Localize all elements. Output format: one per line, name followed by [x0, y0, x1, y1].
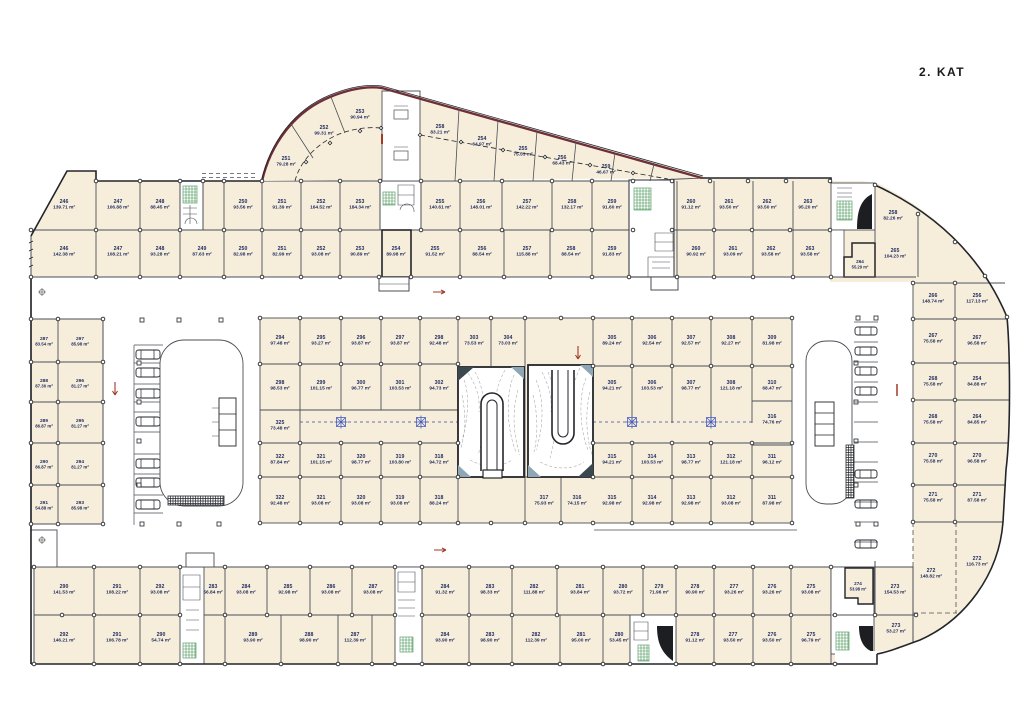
- svg-text:283: 283: [486, 632, 495, 638]
- svg-text:264: 264: [856, 259, 864, 264]
- svg-text:54.74 m²: 54.74 m²: [151, 638, 171, 644]
- svg-text:68.43 m²: 68.43 m²: [552, 161, 572, 167]
- svg-text:99.31 m²: 99.31 m²: [314, 131, 334, 137]
- svg-text:74.76 m²: 74.76 m²: [762, 420, 782, 426]
- svg-text:84.85 m²: 84.85 m²: [967, 420, 987, 426]
- svg-text:90.94 m²: 90.94 m²: [350, 115, 370, 121]
- svg-text:83.54 m²: 83.54 m²: [35, 342, 53, 347]
- svg-text:268: 268: [929, 414, 938, 420]
- svg-text:104.23 m²: 104.23 m²: [884, 254, 906, 260]
- svg-text:92.27 m²: 92.27 m²: [721, 341, 741, 347]
- svg-text:64.97 m²: 64.97 m²: [472, 142, 492, 148]
- svg-text:132.17 m²: 132.17 m²: [561, 205, 583, 211]
- svg-text:93.28 m²: 93.28 m²: [150, 252, 170, 258]
- svg-text:260: 260: [692, 246, 701, 252]
- svg-text:301: 301: [396, 380, 405, 386]
- svg-text:291: 291: [113, 584, 122, 590]
- svg-text:93.58 m²: 93.58 m²: [761, 252, 781, 258]
- svg-text:247: 247: [114, 246, 123, 252]
- svg-text:91.83 m²: 91.83 m²: [602, 252, 622, 258]
- svg-text:250: 250: [239, 199, 248, 205]
- svg-text:82.98 m²: 82.98 m²: [233, 252, 253, 258]
- svg-text:304: 304: [504, 335, 513, 341]
- svg-text:316: 316: [573, 495, 582, 501]
- svg-text:68.47 m²: 68.47 m²: [762, 386, 782, 392]
- svg-text:298: 298: [435, 335, 444, 341]
- svg-text:53.27 m²: 53.27 m²: [886, 629, 906, 635]
- svg-text:106.88 m²: 106.88 m²: [107, 205, 129, 211]
- svg-text:97.48 m²: 97.48 m²: [270, 341, 290, 347]
- svg-text:314: 314: [648, 495, 657, 501]
- svg-text:93.09 m²: 93.09 m²: [723, 252, 743, 258]
- svg-text:93.27 m²: 93.27 m²: [311, 341, 331, 347]
- svg-text:317: 317: [540, 495, 549, 501]
- svg-text:316: 316: [768, 414, 777, 420]
- svg-text:85.98 m²: 85.98 m²: [71, 342, 89, 347]
- svg-text:92.98 m²: 92.98 m²: [642, 501, 662, 507]
- svg-text:263: 263: [804, 199, 813, 205]
- svg-text:292: 292: [156, 584, 165, 590]
- svg-text:258: 258: [436, 124, 445, 130]
- svg-text:285: 285: [284, 584, 293, 590]
- svg-text:255: 255: [431, 246, 440, 252]
- svg-text:305: 305: [608, 335, 617, 341]
- svg-text:273: 273: [892, 623, 901, 629]
- svg-text:303: 303: [470, 335, 479, 341]
- svg-text:93.08 m²: 93.08 m²: [311, 501, 331, 507]
- svg-text:320: 320: [357, 454, 366, 460]
- svg-text:87.84 m²: 87.84 m²: [270, 460, 290, 466]
- svg-text:283: 283: [486, 584, 495, 590]
- svg-text:140.61 m²: 140.61 m²: [429, 205, 451, 211]
- svg-text:87.30 m²: 87.30 m²: [35, 384, 53, 389]
- svg-text:55.29 m²: 55.29 m²: [852, 265, 869, 270]
- svg-text:272: 272: [927, 568, 936, 574]
- svg-text:251: 251: [278, 199, 287, 205]
- svg-text:96.58 m²: 96.58 m²: [967, 459, 987, 465]
- svg-text:93.56 m²: 93.56 m²: [233, 205, 253, 211]
- svg-text:260: 260: [687, 199, 696, 205]
- svg-text:259: 259: [608, 199, 617, 205]
- svg-text:252: 252: [317, 199, 326, 205]
- svg-text:251: 251: [282, 156, 291, 162]
- svg-text:251: 251: [278, 246, 287, 252]
- svg-text:93.50 m²: 93.50 m²: [757, 205, 777, 211]
- svg-text:86.87 m²: 86.87 m²: [35, 424, 53, 429]
- svg-text:111.88 m²: 111.88 m²: [523, 590, 545, 596]
- svg-text:91.52 m²: 91.52 m²: [425, 252, 445, 258]
- svg-text:256: 256: [973, 293, 982, 299]
- svg-text:267: 267: [973, 335, 982, 341]
- svg-text:261: 261: [725, 199, 734, 205]
- svg-text:75.58 m²: 75.58 m²: [923, 420, 943, 426]
- svg-text:98.77 m²: 98.77 m²: [681, 386, 701, 392]
- svg-text:92.98 m²: 92.98 m²: [602, 501, 622, 507]
- svg-text:253: 253: [356, 246, 365, 252]
- svg-text:307: 307: [687, 335, 696, 341]
- svg-text:261: 261: [729, 246, 738, 252]
- svg-text:96.77 m²: 96.77 m²: [351, 386, 371, 392]
- svg-text:81.27 m²: 81.27 m²: [71, 384, 89, 389]
- svg-text:256: 256: [477, 199, 486, 205]
- svg-text:121.18 m²: 121.18 m²: [720, 386, 742, 392]
- svg-text:92.57 m²: 92.57 m²: [681, 341, 701, 347]
- svg-text:322: 322: [276, 454, 285, 460]
- svg-text:310: 310: [768, 380, 777, 386]
- svg-text:92.48 m²: 92.48 m²: [270, 501, 290, 507]
- svg-text:93.08 m²: 93.08 m²: [390, 501, 410, 507]
- svg-text:93.50 m²: 93.50 m²: [723, 638, 743, 644]
- svg-text:276: 276: [768, 632, 777, 638]
- svg-text:321: 321: [317, 454, 326, 460]
- svg-text:247: 247: [114, 199, 123, 205]
- svg-text:252: 252: [320, 125, 329, 131]
- svg-text:101.15 m²: 101.15 m²: [310, 460, 332, 466]
- svg-text:314: 314: [648, 454, 657, 460]
- svg-text:302: 302: [435, 380, 444, 386]
- svg-text:262: 262: [767, 246, 776, 252]
- svg-text:141.53 m²: 141.53 m²: [53, 590, 75, 596]
- svg-text:98.90 m²: 98.90 m²: [299, 638, 319, 644]
- svg-text:315: 315: [608, 454, 617, 460]
- svg-text:93.90 m²: 93.90 m²: [243, 638, 263, 644]
- svg-text:290: 290: [60, 584, 69, 590]
- svg-text:313: 313: [687, 495, 696, 501]
- svg-text:121.18 m²: 121.18 m²: [720, 460, 742, 466]
- svg-text:281: 281: [576, 584, 585, 590]
- svg-text:258: 258: [889, 210, 898, 216]
- svg-text:325: 325: [276, 420, 285, 426]
- svg-text:90.89 m²: 90.89 m²: [350, 252, 370, 258]
- svg-text:164.52 m²: 164.52 m²: [310, 205, 332, 211]
- svg-text:146.21 m²: 146.21 m²: [53, 638, 75, 644]
- svg-text:258: 258: [567, 246, 576, 252]
- svg-text:73.03 m²: 73.03 m²: [498, 341, 518, 347]
- svg-text:98.53 m²: 98.53 m²: [270, 386, 290, 392]
- svg-text:266: 266: [929, 293, 938, 299]
- svg-text:103.80 m²: 103.80 m²: [389, 460, 411, 466]
- svg-text:103.53 m²: 103.53 m²: [389, 386, 411, 392]
- svg-text:308: 308: [727, 380, 736, 386]
- svg-text:256: 256: [558, 155, 567, 161]
- svg-text:87.58 m²: 87.58 m²: [967, 498, 987, 504]
- svg-text:277: 277: [730, 584, 739, 590]
- svg-text:246: 246: [60, 246, 69, 252]
- svg-text:254: 254: [478, 136, 487, 142]
- svg-text:297: 297: [396, 335, 405, 341]
- svg-text:117.13 m²: 117.13 m²: [966, 299, 988, 305]
- svg-text:276: 276: [768, 584, 777, 590]
- svg-text:320: 320: [357, 495, 366, 501]
- svg-text:257: 257: [523, 246, 532, 252]
- svg-text:2. KAT: 2. KAT: [919, 65, 965, 79]
- svg-text:83.21 m²: 83.21 m²: [430, 130, 450, 136]
- svg-text:115.88 m²: 115.88 m²: [516, 252, 538, 258]
- svg-text:90.90 m²: 90.90 m²: [685, 590, 705, 596]
- svg-text:280: 280: [619, 584, 628, 590]
- svg-text:54.88 m²: 54.88 m²: [35, 506, 53, 511]
- svg-text:277: 277: [729, 632, 738, 638]
- svg-text:89.98 m²: 89.98 m²: [386, 252, 406, 258]
- svg-text:290: 290: [157, 632, 166, 638]
- svg-text:98.90 m²: 98.90 m²: [480, 638, 500, 644]
- svg-text:84.88 m²: 84.88 m²: [967, 382, 987, 388]
- svg-text:86.87 m²: 86.87 m²: [35, 465, 53, 470]
- svg-text:308: 308: [727, 335, 736, 341]
- svg-text:256: 256: [478, 246, 487, 252]
- svg-text:98.77 m²: 98.77 m²: [351, 460, 371, 466]
- svg-text:95.00 m²: 95.00 m²: [571, 638, 591, 644]
- svg-text:142.22 m²: 142.22 m²: [516, 205, 538, 211]
- svg-text:305: 305: [608, 380, 617, 386]
- svg-text:252: 252: [317, 246, 326, 252]
- svg-text:96.58 m²: 96.58 m²: [967, 341, 987, 347]
- svg-text:311: 311: [768, 495, 776, 501]
- svg-text:93.87 m²: 93.87 m²: [390, 341, 410, 347]
- svg-text:279: 279: [655, 584, 664, 590]
- svg-text:87.98 m²: 87.98 m²: [762, 501, 782, 507]
- svg-text:248: 248: [156, 199, 165, 205]
- svg-text:259: 259: [608, 246, 617, 252]
- svg-text:312: 312: [727, 495, 736, 501]
- svg-text:112.39 m²: 112.39 m²: [525, 638, 547, 644]
- svg-text:112.39 m²: 112.39 m²: [344, 638, 366, 644]
- svg-text:93.08 m²: 93.08 m²: [311, 252, 331, 258]
- svg-text:94.21 m²: 94.21 m²: [602, 386, 622, 392]
- svg-text:287: 287: [369, 584, 378, 590]
- svg-text:75.58 m²: 75.58 m²: [923, 382, 943, 388]
- svg-text:46.67 m²: 46.67 m²: [596, 170, 616, 176]
- svg-text:284: 284: [441, 584, 450, 590]
- svg-text:258: 258: [568, 199, 577, 205]
- svg-text:91.12 m²: 91.12 m²: [685, 638, 705, 644]
- svg-text:262: 262: [763, 199, 772, 205]
- svg-text:94.72 m²: 94.72 m²: [429, 460, 449, 466]
- svg-text:271: 271: [929, 492, 938, 498]
- svg-text:93.08 m²: 93.08 m²: [721, 501, 741, 507]
- svg-text:306: 306: [648, 335, 657, 341]
- svg-text:88.54 m²: 88.54 m²: [561, 252, 581, 258]
- svg-text:270: 270: [929, 453, 938, 459]
- svg-text:148.74 m²: 148.74 m²: [922, 299, 944, 305]
- svg-text:103.53 m²: 103.53 m²: [641, 386, 663, 392]
- svg-text:249: 249: [198, 246, 207, 252]
- svg-text:253: 253: [356, 199, 365, 205]
- svg-text:292: 292: [60, 632, 69, 638]
- svg-text:87.63 m²: 87.63 m²: [192, 252, 212, 258]
- svg-text:93.26 m²: 93.26 m²: [724, 590, 744, 596]
- svg-text:96.79 m²: 96.79 m²: [801, 638, 821, 644]
- svg-text:98.33 m²: 98.33 m²: [480, 590, 500, 596]
- svg-text:268: 268: [929, 376, 938, 382]
- svg-text:267: 267: [929, 333, 938, 339]
- svg-text:93.50 m²: 93.50 m²: [719, 205, 739, 211]
- svg-text:92.48 m²: 92.48 m²: [429, 341, 449, 347]
- svg-text:307: 307: [687, 380, 696, 386]
- svg-text:148.01 m²: 148.01 m²: [470, 205, 492, 211]
- svg-text:300: 300: [357, 380, 366, 386]
- svg-text:71.96 m²: 71.96 m²: [649, 590, 669, 596]
- svg-text:287: 287: [351, 632, 360, 638]
- svg-text:93.90 m²: 93.90 m²: [435, 638, 455, 644]
- svg-text:90.92 m²: 90.92 m²: [686, 252, 706, 258]
- svg-text:286: 286: [327, 584, 336, 590]
- svg-text:75.93 m²: 75.93 m²: [534, 501, 554, 507]
- svg-text:92.98 m²: 92.98 m²: [681, 501, 701, 507]
- svg-text:278: 278: [691, 584, 700, 590]
- svg-text:82.26 m²: 82.26 m²: [883, 216, 903, 222]
- svg-text:278: 278: [691, 632, 700, 638]
- svg-text:93.26 m²: 93.26 m²: [762, 590, 782, 596]
- svg-text:94.21 m²: 94.21 m²: [602, 460, 622, 466]
- svg-text:93.08 m²: 93.08 m²: [236, 590, 256, 596]
- svg-text:319: 319: [396, 495, 405, 501]
- svg-text:250: 250: [239, 246, 248, 252]
- svg-text:92.98 m²: 92.98 m²: [278, 590, 298, 596]
- svg-text:272: 272: [973, 556, 982, 562]
- svg-text:73.53 m²: 73.53 m²: [464, 341, 484, 347]
- svg-text:93.08 m²: 93.08 m²: [801, 590, 821, 596]
- svg-text:53.98 m²: 53.98 m²: [850, 587, 867, 592]
- svg-text:95.20 m²: 95.20 m²: [798, 205, 818, 211]
- svg-text:108.22 m²: 108.22 m²: [106, 590, 128, 596]
- svg-text:116.73 m²: 116.73 m²: [966, 562, 988, 568]
- svg-text:91.32 m²: 91.32 m²: [435, 590, 455, 596]
- svg-text:284: 284: [441, 632, 450, 638]
- svg-text:93.72 m²: 93.72 m²: [613, 590, 633, 596]
- svg-text:321: 321: [317, 495, 326, 501]
- svg-text:93.08 m²: 93.08 m²: [351, 501, 371, 507]
- svg-text:93.50 m²: 93.50 m²: [762, 638, 782, 644]
- svg-text:263: 263: [806, 246, 815, 252]
- svg-text:108.21 m²: 108.21 m²: [107, 252, 129, 258]
- svg-text:75.53 m²: 75.53 m²: [513, 152, 533, 158]
- svg-text:103.53 m²: 103.53 m²: [641, 460, 663, 466]
- svg-text:255: 255: [519, 146, 528, 152]
- svg-text:318: 318: [435, 454, 444, 460]
- svg-text:273: 273: [891, 584, 900, 590]
- svg-text:93.08 m²: 93.08 m²: [150, 590, 170, 596]
- svg-text:275: 275: [807, 632, 816, 638]
- svg-text:98.77 m²: 98.77 m²: [681, 460, 701, 466]
- svg-text:298: 298: [276, 380, 285, 386]
- svg-text:53.45 m²: 53.45 m²: [609, 638, 629, 644]
- svg-text:270: 270: [973, 453, 982, 459]
- svg-text:81.98 m²: 81.98 m²: [762, 341, 782, 347]
- svg-text:89.24 m²: 89.24 m²: [602, 341, 622, 347]
- svg-text:75.58 m²: 75.58 m²: [923, 498, 943, 504]
- svg-text:254: 254: [392, 246, 401, 252]
- svg-text:282: 282: [532, 632, 541, 638]
- svg-text:93.08 m²: 93.08 m²: [321, 590, 341, 596]
- svg-text:101.15 m²: 101.15 m²: [310, 386, 332, 392]
- svg-text:299: 299: [317, 380, 326, 386]
- svg-text:142.38 m²: 142.38 m²: [53, 252, 75, 258]
- svg-text:184.34 m²: 184.34 m²: [349, 205, 371, 211]
- svg-text:296: 296: [357, 335, 366, 341]
- svg-text:283: 283: [209, 584, 218, 590]
- svg-text:93.87 m²: 93.87 m²: [351, 341, 371, 347]
- svg-text:254: 254: [973, 376, 982, 382]
- svg-text:288: 288: [305, 632, 314, 638]
- svg-text:255: 255: [436, 199, 445, 205]
- svg-text:281: 281: [577, 632, 586, 638]
- svg-text:82.99 m²: 82.99 m²: [272, 252, 292, 258]
- svg-text:93.84 m²: 93.84 m²: [570, 590, 590, 596]
- svg-text:75.58 m²: 75.58 m²: [923, 459, 943, 465]
- svg-text:259: 259: [602, 164, 611, 170]
- svg-text:73.48 m²: 73.48 m²: [270, 426, 290, 432]
- svg-text:284: 284: [242, 584, 251, 590]
- svg-text:88.24 m²: 88.24 m²: [429, 501, 449, 507]
- svg-text:257: 257: [523, 199, 532, 205]
- svg-text:96.12 m²: 96.12 m²: [762, 460, 782, 466]
- svg-text:81.27 m²: 81.27 m²: [71, 465, 89, 470]
- svg-text:74.15 m²: 74.15 m²: [567, 501, 587, 507]
- svg-text:319: 319: [396, 454, 405, 460]
- svg-text:92.54 m²: 92.54 m²: [642, 341, 662, 347]
- svg-text:91.60 m²: 91.60 m²: [602, 205, 622, 211]
- svg-text:93.08 m²: 93.08 m²: [363, 590, 383, 596]
- svg-text:79.28 m²: 79.28 m²: [276, 162, 296, 168]
- svg-text:282: 282: [530, 584, 539, 590]
- svg-text:264: 264: [973, 414, 982, 420]
- svg-text:322: 322: [276, 495, 285, 501]
- svg-text:318: 318: [435, 495, 444, 501]
- svg-text:91.12 m²: 91.12 m²: [681, 205, 701, 211]
- svg-text:280: 280: [615, 632, 624, 638]
- svg-text:248: 248: [156, 246, 165, 252]
- svg-text:88.45 m²: 88.45 m²: [150, 205, 170, 211]
- svg-text:311: 311: [768, 454, 776, 460]
- svg-text:315: 315: [608, 495, 617, 501]
- svg-text:309: 309: [768, 335, 777, 341]
- svg-text:306: 306: [648, 380, 657, 386]
- svg-text:274: 274: [854, 581, 862, 586]
- svg-text:75.58 m²: 75.58 m²: [923, 339, 943, 345]
- svg-text:91.39 m²: 91.39 m²: [272, 205, 292, 211]
- svg-text:265: 265: [891, 248, 900, 254]
- svg-text:56.84 m²: 56.84 m²: [203, 590, 223, 596]
- svg-text:106.78 m²: 106.78 m²: [106, 638, 128, 644]
- svg-text:148.82 m²: 148.82 m²: [920, 574, 942, 580]
- svg-text:271: 271: [973, 492, 982, 498]
- svg-text:313: 313: [687, 454, 696, 460]
- svg-text:289: 289: [249, 632, 258, 638]
- svg-text:139.71 m²: 139.71 m²: [53, 205, 75, 211]
- svg-text:81.27 m²: 81.27 m²: [71, 424, 89, 429]
- svg-text:275: 275: [807, 584, 816, 590]
- svg-text:291: 291: [113, 632, 122, 638]
- svg-text:94.73 m²: 94.73 m²: [429, 386, 449, 392]
- svg-text:154.53 m²: 154.53 m²: [884, 590, 906, 596]
- svg-text:294: 294: [276, 335, 285, 341]
- svg-text:246: 246: [60, 199, 69, 205]
- svg-text:93.58 m²: 93.58 m²: [800, 252, 820, 258]
- svg-text:295: 295: [317, 335, 326, 341]
- svg-text:312: 312: [727, 454, 736, 460]
- svg-text:85.98 m²: 85.98 m²: [71, 506, 89, 511]
- svg-text:88.54 m²: 88.54 m²: [472, 252, 492, 258]
- svg-text:253: 253: [356, 109, 365, 115]
